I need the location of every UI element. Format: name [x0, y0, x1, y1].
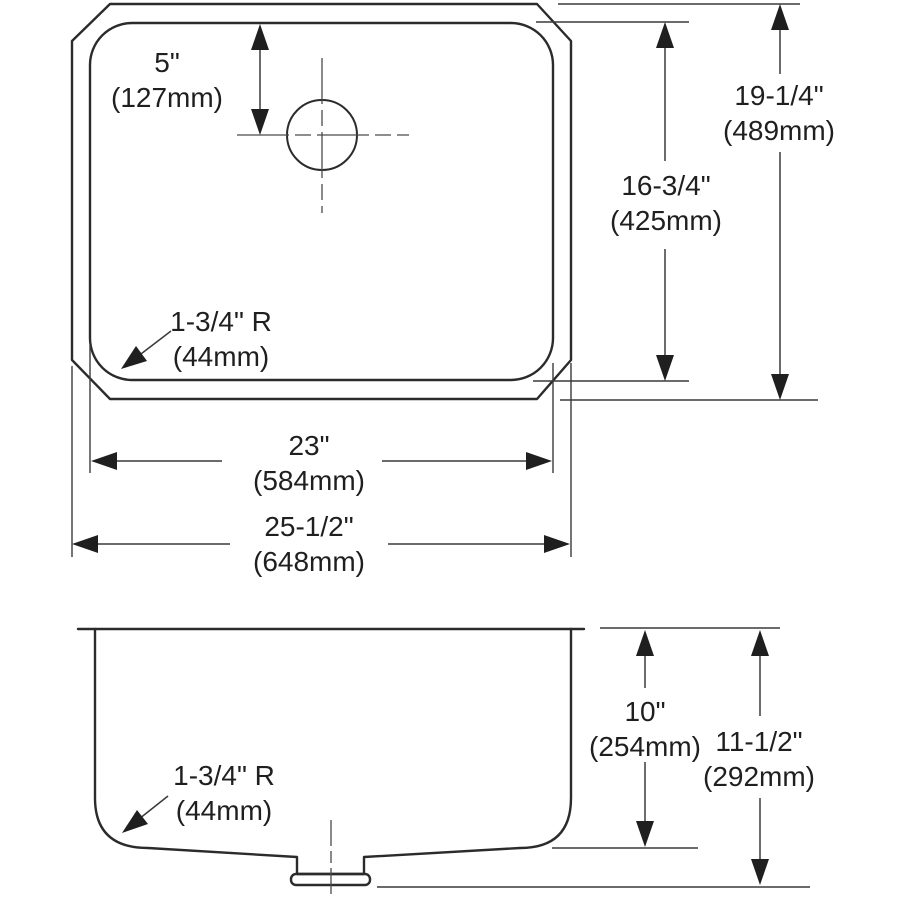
arrowhead-down [771, 374, 789, 400]
arrowhead-leader [121, 346, 147, 369]
label-overall-depth: 11-1/2" (292mm) [703, 724, 815, 794]
dim-imperial: 23" [253, 428, 365, 463]
dim-metric: (254mm) [589, 729, 701, 764]
dim-imperial: 1-3/4" R [173, 758, 275, 793]
arrowhead-down [656, 355, 674, 381]
arrowhead-up [656, 22, 674, 48]
dim-imperial: 11-1/2" [703, 724, 815, 759]
arrowhead-down [636, 821, 654, 847]
dim-metric: (44mm) [173, 793, 275, 828]
arrowhead-up [636, 630, 654, 656]
arrowhead-left [91, 452, 117, 470]
dim-imperial: 16-3/4" [610, 168, 722, 203]
dim-metric: (127mm) [111, 80, 223, 115]
dim-imperial: 5" [111, 45, 223, 80]
arrowhead-down [251, 109, 269, 135]
leader-corner-radius [137, 331, 171, 357]
arrowhead-down [751, 859, 769, 885]
dim-metric: (44mm) [170, 339, 272, 374]
arrowhead-up [751, 630, 769, 656]
arrowhead-up [771, 4, 789, 30]
dim-metric: (584mm) [253, 463, 365, 498]
label-faucet-offset: 5" (127mm) [111, 45, 223, 115]
arrowhead-up [251, 24, 269, 50]
label-overall-width: 19-1/4" (489mm) [723, 78, 835, 148]
arrowhead-left [72, 535, 98, 553]
label-bowl-width: 16-3/4" (425mm) [610, 168, 722, 238]
label-overall-length: 25-1/2" (648mm) [253, 509, 365, 579]
label-top-corner-radius: 1-3/4" R (44mm) [170, 304, 272, 374]
arrowhead-right [526, 452, 552, 470]
bowl-profile [95, 629, 571, 874]
dim-metric: (292mm) [703, 759, 815, 794]
side-view [78, 629, 584, 898]
dim-imperial: 19-1/4" [723, 78, 835, 113]
arrowhead-right [544, 535, 570, 553]
sink-spec-drawing: 5" (127mm) 1-3/4" R (44mm) 16-3/4" (425m… [0, 0, 900, 900]
dim-metric: (489mm) [723, 113, 835, 148]
label-side-corner-radius: 1-3/4" R (44mm) [173, 758, 275, 828]
dim-imperial: 10" [589, 694, 701, 729]
leader-corner-radius [139, 796, 168, 819]
dim-imperial: 1-3/4" R [170, 304, 272, 339]
arrowhead-leader [122, 810, 148, 833]
dim-imperial: 25-1/2" [253, 509, 365, 544]
label-bowl-length: 23" (584mm) [253, 428, 365, 498]
dim-metric: (425mm) [610, 203, 722, 238]
dim-metric: (648mm) [253, 544, 365, 579]
label-bowl-depth: 10" (254mm) [589, 694, 701, 764]
